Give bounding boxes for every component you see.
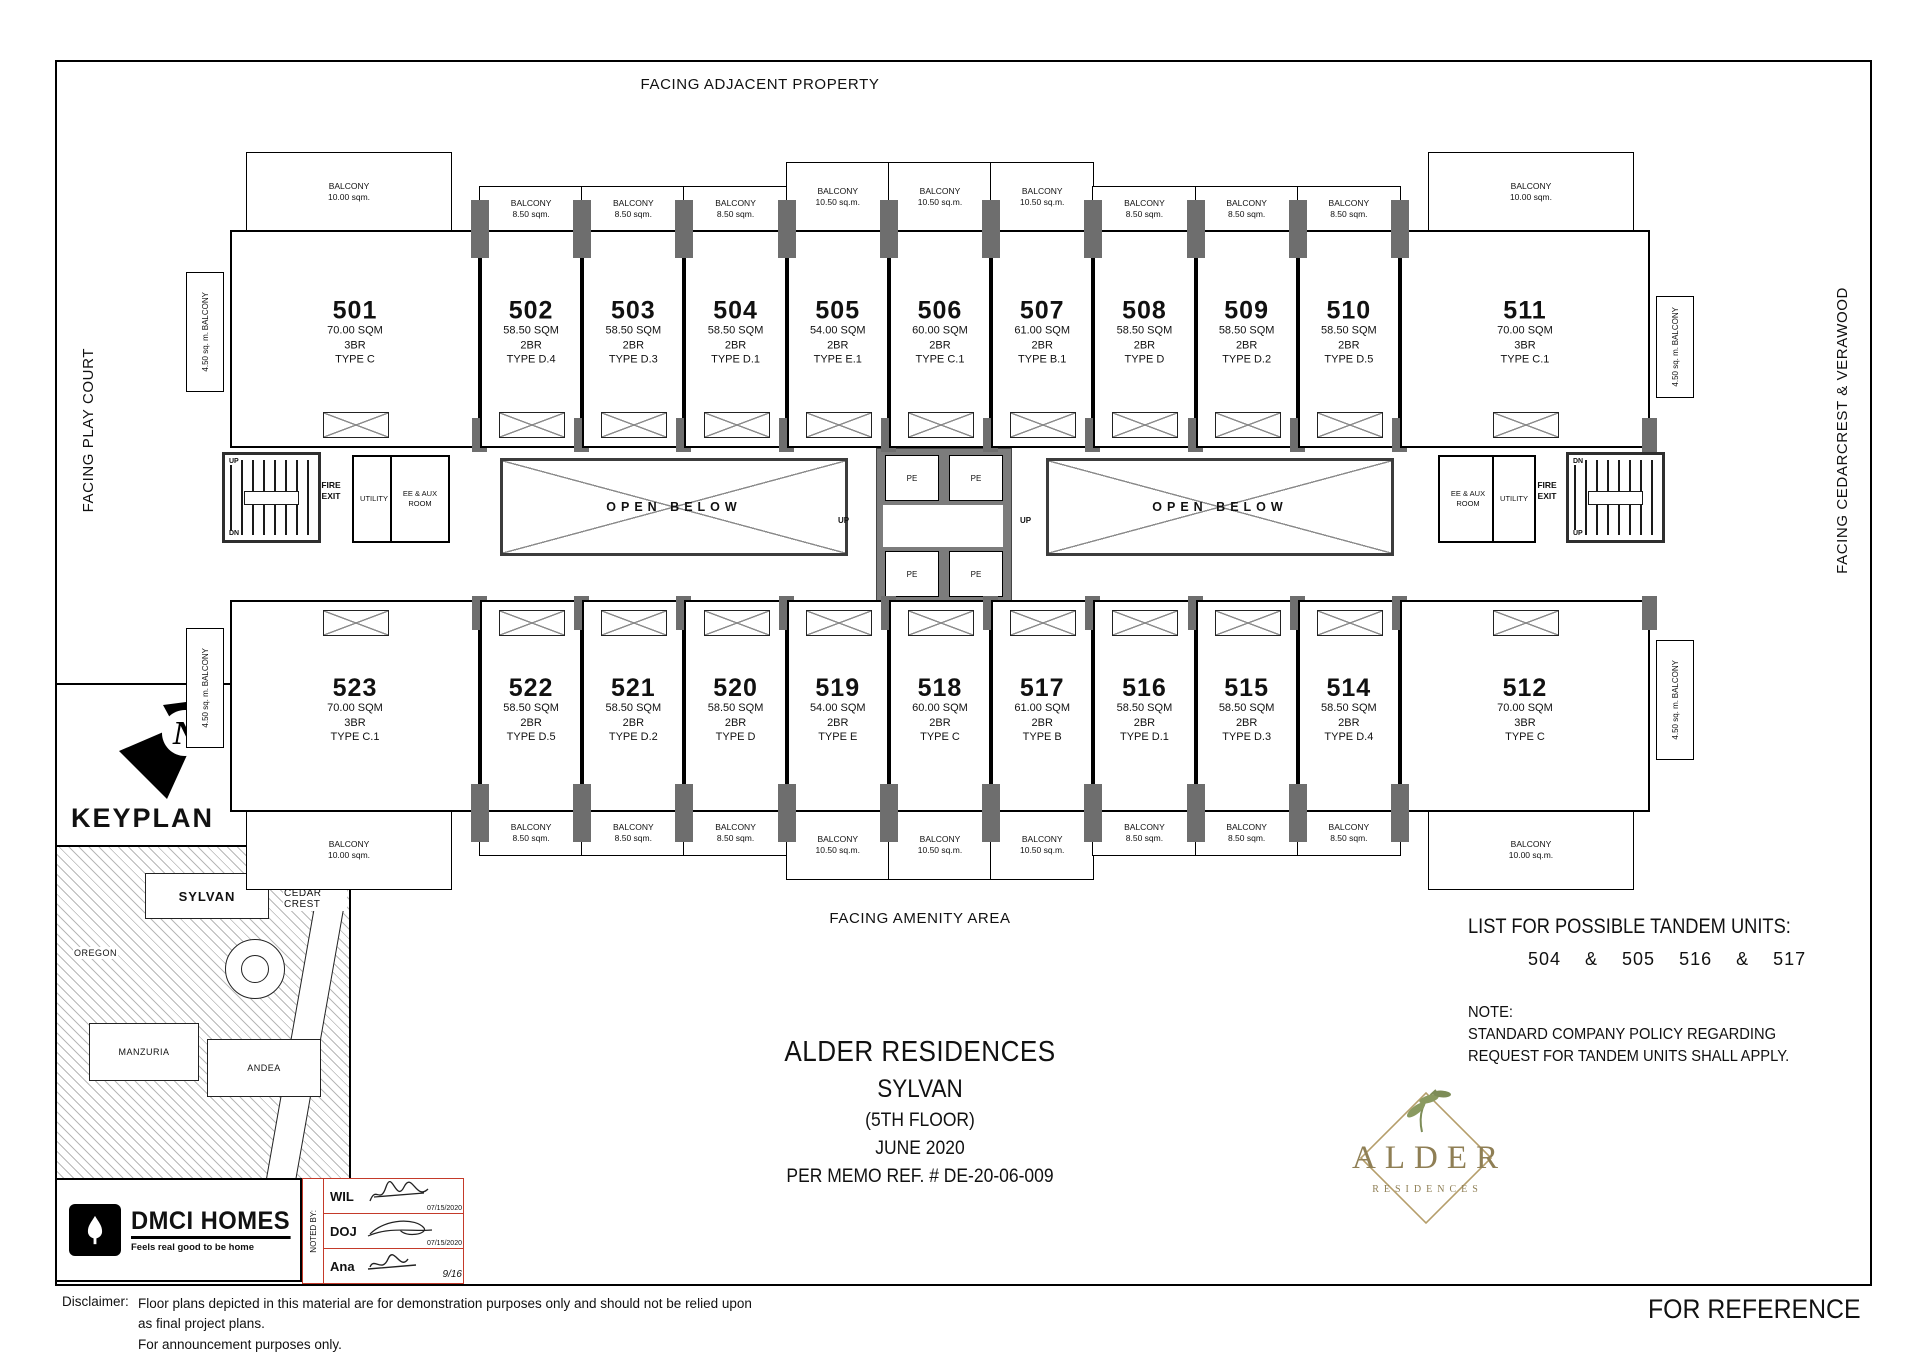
column-block xyxy=(982,200,1000,258)
unit-label: 50358.50 SQM2BRTYPE D.3 xyxy=(588,298,678,367)
stair-dn-label: DN xyxy=(228,530,240,537)
keyplan-roundabout xyxy=(225,939,285,999)
lower-unit-band: BALCONY10.00 sqm.52370.00 SQM3BRTYPE C.1… xyxy=(230,600,1650,890)
elevator-lobby xyxy=(883,505,1003,547)
fire-exit-label-left: FIRE EXIT xyxy=(312,480,350,502)
column-block xyxy=(573,784,591,842)
building-name: SYLVAN xyxy=(758,1075,1082,1104)
unit-balcony: BALCONY10.50 sq.m. xyxy=(990,810,1094,880)
unit-balcony: BALCONY10.00 sqm. xyxy=(246,152,452,232)
unit-number: 502 xyxy=(486,298,576,324)
unit-bedrooms: 2BR xyxy=(486,338,576,352)
unit-type: TYPE C xyxy=(895,730,985,744)
balcony-label: BALCONY xyxy=(511,823,552,832)
unit-bedrooms: 3BR xyxy=(1406,715,1644,729)
bathroom-fixture xyxy=(1010,412,1076,438)
unit-balcony: BALCONY10.50 sq.m. xyxy=(786,162,890,232)
unit-balcony: BALCONY10.50 sq.m. xyxy=(990,162,1094,232)
balcony-area: 10.50 sq.m. xyxy=(816,198,860,207)
unit-balcony: BALCONY8.50 sqm. xyxy=(683,810,787,856)
unit-type: TYPE D.3 xyxy=(1202,730,1292,744)
unit-number: 505 xyxy=(793,298,883,324)
unit-type: TYPE B.1 xyxy=(997,352,1087,366)
tandem-pairs: 504 & 505 516 & 517 xyxy=(1528,949,1888,970)
balcony-label: BALCONY xyxy=(920,187,961,196)
unit-interior: 52058.50 SQM2BRTYPE D xyxy=(684,600,786,812)
tandem-heading: LIST FOR POSSIBLE TANDEM UNITS: xyxy=(1468,915,1833,939)
balcony-label: BALCONY xyxy=(715,199,756,208)
unit-bedrooms: 2BR xyxy=(1202,715,1292,729)
tandem-note-label: NOTE: xyxy=(1468,1004,1854,1022)
balcony-area: 8.50 sqm. xyxy=(512,210,549,219)
open-below-label: OPEN BELOW xyxy=(1049,500,1391,514)
balcony-area: 10.50 sq.m. xyxy=(816,846,860,855)
unit-number: 514 xyxy=(1304,675,1394,701)
unit-interior: 50358.50 SQM2BRTYPE D.3 xyxy=(582,230,684,448)
column-block xyxy=(573,200,591,258)
unit-label: 50858.50 SQM2BRTYPE D xyxy=(1099,298,1189,367)
balcony-512-side: BALCONY 4.50 sq. m. xyxy=(1656,640,1694,760)
unit-area: 58.50 SQM xyxy=(1202,324,1292,338)
balcony-area: 10.50 sq.m. xyxy=(1020,198,1064,207)
balcony-label: BALCONY xyxy=(201,292,210,330)
balcony-label: BALCONY xyxy=(613,199,654,208)
unit-503: BALCONY8.50 sqm.50358.50 SQM2BRTYPE D.3 xyxy=(582,152,684,448)
bathroom-fixture xyxy=(323,412,389,438)
unit-interior: 52158.50 SQM2BRTYPE D.2 xyxy=(582,600,684,812)
unit-label: 51761.00 SQM2BRTYPE B xyxy=(997,675,1087,744)
facing-play-court-label: FACING PLAY COURT xyxy=(80,320,97,540)
signatory-name: WIL xyxy=(330,1189,354,1204)
unit-balcony: BALCONY8.50 sqm. xyxy=(1195,810,1299,856)
unit-bedrooms: 3BR xyxy=(236,338,474,352)
keyplan-cedar-crest-label: CEDAR CREST xyxy=(283,887,347,911)
ee-aux-room-left: EE & AUX ROOM xyxy=(390,455,450,543)
unit-interior: 50858.50 SQM2BRTYPE D xyxy=(1093,230,1195,448)
noted-by-header: NOTED BY: xyxy=(303,1179,324,1283)
balcony-label: BALCONY xyxy=(201,648,210,686)
unit-514: BALCONY8.50 sqm.51458.50 SQM2BRTYPE D.4 xyxy=(1298,600,1400,890)
unit-number: 510 xyxy=(1304,298,1394,324)
unit-type: TYPE D.2 xyxy=(588,730,678,744)
unit-type: TYPE C.1 xyxy=(1406,352,1644,366)
balcony-area: 8.50 sqm. xyxy=(1228,210,1265,219)
open-below-label: OPEN BELOW xyxy=(503,500,845,514)
balcony-501-side: BALCONY 4.50 sq. m. xyxy=(186,272,224,392)
unit-label: 51658.50 SQM2BRTYPE D.1 xyxy=(1099,675,1189,744)
unit-bedrooms: 2BR xyxy=(997,338,1087,352)
column-block xyxy=(1391,200,1409,258)
bathroom-fixture xyxy=(704,610,770,636)
unit-510: BALCONY8.50 sqm.51058.50 SQM2BRTYPE D.5 xyxy=(1298,152,1400,448)
unit-area: 58.50 SQM xyxy=(486,324,576,338)
unit-area: 58.50 SQM xyxy=(690,324,780,338)
balcony-label: BALCONY xyxy=(817,835,858,844)
disclaimer-text: Floor plans depicted in this material ar… xyxy=(138,1294,758,1355)
balcony-area: 10.50 sq.m. xyxy=(1020,846,1064,855)
unit-interior: 50660.00 SQM2BRTYPE C.1 xyxy=(889,230,991,448)
unit-bedrooms: 3BR xyxy=(1406,338,1644,352)
unit-number: 501 xyxy=(236,298,474,324)
unit-number: 523 xyxy=(236,675,474,701)
unit-area: 61.00 SQM xyxy=(997,324,1087,338)
column-block xyxy=(471,200,489,258)
fire-exit-stair-left: UP DN xyxy=(222,452,321,543)
unit-area: 70.00 SQM xyxy=(1406,324,1644,338)
balcony-area: 10.00 sqm. xyxy=(328,193,370,202)
unit-area: 58.50 SQM xyxy=(588,701,678,715)
balcony-area: 8.50 sqm. xyxy=(1330,834,1367,843)
unit-type: TYPE B xyxy=(997,730,1087,744)
noted-by-row: WIL 07/15/2020 xyxy=(324,1179,463,1214)
balcony-label: BALCONY xyxy=(1226,823,1267,832)
bathroom-fixture xyxy=(1493,412,1559,438)
unit-number: 512 xyxy=(1406,675,1644,701)
stair-landing xyxy=(244,491,300,505)
unit-506: BALCONY10.50 sq.m.50660.00 SQM2BRTYPE C.… xyxy=(889,152,991,448)
bathroom-fixture xyxy=(1010,610,1076,636)
balcony-label: BALCONY xyxy=(1022,187,1063,196)
unit-label: 51270.00 SQM3BRTYPE C xyxy=(1406,675,1644,744)
balcony-area: 8.50 sqm. xyxy=(1126,210,1163,219)
issue-date: JUNE 2020 xyxy=(754,1138,1085,1160)
unit-balcony: BALCONY10.00 sq.m. xyxy=(1428,810,1634,890)
unit-517: BALCONY10.50 sq.m.51761.00 SQM2BRTYPE B xyxy=(991,600,1093,890)
balcony-area: 10.00 sq.m. xyxy=(1509,851,1553,860)
bathroom-fixture xyxy=(499,610,565,636)
tandem-note-line: REQUEST FOR TANDEM UNITS SHALL APPLY. xyxy=(1468,1048,1854,1066)
unit-number: 509 xyxy=(1202,298,1292,324)
unit-502: BALCONY8.50 sqm.50258.50 SQM2BRTYPE D.4 xyxy=(480,152,582,448)
stair-up-label: UP xyxy=(228,458,240,465)
dmci-tagline: Feels real good to be home xyxy=(131,1242,299,1253)
keyplan-map: SYLVAN CEDAR CREST OREGON MANZURIA ANDEA xyxy=(55,845,351,1184)
unit-label: 50258.50 SQM2BRTYPE D.4 xyxy=(486,298,576,367)
stair-landing xyxy=(1588,491,1644,505)
balcony-label: BALCONY xyxy=(1511,182,1552,191)
signature-icon xyxy=(366,1216,436,1242)
column-block xyxy=(880,784,898,842)
keyplan-sylvan-label: SYLVAN xyxy=(179,889,236,904)
unit-number: 517 xyxy=(997,675,1087,701)
bathroom-fixture xyxy=(1112,412,1178,438)
balcony-area: 4.50 sq. m. xyxy=(1671,347,1680,387)
unit-label: 52058.50 SQM2BRTYPE D xyxy=(690,675,780,744)
stair-up-label: UP xyxy=(1572,530,1584,537)
balcony-label: BALCONY xyxy=(715,823,756,832)
unit-bedrooms: 2BR xyxy=(895,715,985,729)
unit-type: TYPE D xyxy=(690,730,780,744)
keyplan-oregon-label: OREGON xyxy=(73,947,118,959)
unit-label: 52370.00 SQM3BRTYPE C.1 xyxy=(236,675,474,744)
unit-type: TYPE D.1 xyxy=(1099,730,1189,744)
unit-label: 50761.00 SQM2BRTYPE B.1 xyxy=(997,298,1087,367)
balcony-label: BALCONY xyxy=(1124,823,1165,832)
signature-icon xyxy=(366,1251,422,1277)
unit-area: 58.50 SQM xyxy=(486,701,576,715)
unit-interior: 52370.00 SQM3BRTYPE C.1 xyxy=(230,600,480,812)
passenger-elevator: PE xyxy=(949,455,1003,501)
balcony-area: 8.50 sqm. xyxy=(512,834,549,843)
bathroom-fixture xyxy=(908,610,974,636)
unit-balcony: BALCONY10.00 sqm. xyxy=(1428,152,1634,232)
unit-label: 51058.50 SQM2BRTYPE D.5 xyxy=(1304,298,1394,367)
column-block xyxy=(880,200,898,258)
balcony-area: 8.50 sqm. xyxy=(717,834,754,843)
unit-523: BALCONY10.00 sqm.52370.00 SQM3BRTYPE C.1 xyxy=(230,600,480,890)
unit-512: BALCONY10.00 sq.m.51270.00 SQM3BRTYPE C xyxy=(1400,600,1650,890)
unit-518: BALCONY10.50 sq.m.51860.00 SQM2BRTYPE C xyxy=(889,600,991,890)
balcony-523-side: BALCONY 4.50 sq. m. xyxy=(186,628,224,748)
balcony-label: BALCONY xyxy=(511,199,552,208)
unit-area: 60.00 SQM xyxy=(895,324,985,338)
unit-balcony: BALCONY8.50 sqm. xyxy=(479,186,583,232)
column-block xyxy=(675,784,693,842)
balcony-area: 10.00 sqm. xyxy=(1510,193,1552,202)
column-block xyxy=(778,784,796,842)
unit-bedrooms: 2BR xyxy=(997,715,1087,729)
unit-bedrooms: 2BR xyxy=(1099,338,1189,352)
dmci-homes-wordmark: DMCI HOMES xyxy=(131,1207,290,1239)
unit-504: BALCONY8.50 sqm.50458.50 SQM2BRTYPE D.1 xyxy=(684,152,786,448)
corridor-up-label-right: UP xyxy=(1020,516,1031,525)
unit-interior: 50958.50 SQM2BRTYPE D.2 xyxy=(1196,230,1298,448)
column-block xyxy=(1289,784,1307,842)
unit-bedrooms: 2BR xyxy=(1304,338,1394,352)
column-block xyxy=(675,200,693,258)
signature-date: 9/16 xyxy=(443,1269,462,1280)
balcony-label: BALCONY xyxy=(1226,199,1267,208)
signatory-name: DOJ xyxy=(330,1224,357,1239)
unit-number: 508 xyxy=(1099,298,1189,324)
unit-area: 58.50 SQM xyxy=(690,701,780,715)
unit-bedrooms: 2BR xyxy=(486,715,576,729)
unit-balcony: BALCONY8.50 sqm. xyxy=(581,186,685,232)
unit-balcony: BALCONY8.50 sqm. xyxy=(581,810,685,856)
facing-adjacent-property-label: FACING ADJACENT PROPERTY xyxy=(560,76,960,93)
unit-505: BALCONY10.50 sq.m.50554.00 SQM2BRTYPE E.… xyxy=(787,152,889,448)
unit-area: 54.00 SQM xyxy=(793,324,883,338)
noted-by-table: NOTED BY: WIL 07/15/2020 DOJ 07/15/2020 … xyxy=(302,1178,464,1284)
balcony-511-side: BALCONY 4.50 sq. m. xyxy=(1656,296,1694,398)
balcony-area: 10.00 sqm. xyxy=(328,851,370,860)
balcony-area: 8.50 sqm. xyxy=(717,210,754,219)
unit-type: TYPE E.1 xyxy=(793,352,883,366)
balcony-area: 8.50 sqm. xyxy=(615,834,652,843)
unit-balcony: BALCONY10.00 sqm. xyxy=(246,810,452,890)
unit-balcony: BALCONY8.50 sqm. xyxy=(1092,810,1196,856)
fire-exit-label-right: FIRE EXIT xyxy=(1528,480,1566,502)
unit-bedrooms: 2BR xyxy=(1304,715,1394,729)
unit-number: 516 xyxy=(1099,675,1189,701)
unit-balcony: BALCONY8.50 sqm. xyxy=(1195,186,1299,232)
unit-501: BALCONY10.00 sqm.50170.00 SQM3BRTYPE C xyxy=(230,152,480,448)
unit-type: TYPE D.2 xyxy=(1202,352,1292,366)
unit-area: 60.00 SQM xyxy=(895,701,985,715)
project-title: ALDER RESIDENCES xyxy=(758,1036,1082,1069)
unit-area: 58.50 SQM xyxy=(1304,701,1394,715)
balcony-label: BALCONY xyxy=(1022,835,1063,844)
unit-balcony: BALCONY10.50 sq.m. xyxy=(786,810,890,880)
unit-bedrooms: 2BR xyxy=(895,338,985,352)
unit-interior: 51761.00 SQM2BRTYPE B xyxy=(991,600,1093,812)
column-block xyxy=(778,200,796,258)
unit-area: 70.00 SQM xyxy=(236,324,474,338)
unit-515: BALCONY8.50 sqm.51558.50 SQM2BRTYPE D.3 xyxy=(1196,600,1298,890)
unit-label: 52258.50 SQM2BRTYPE D.5 xyxy=(486,675,576,744)
unit-number: 503 xyxy=(588,298,678,324)
passenger-elevator: PE xyxy=(885,551,939,597)
corridor-up-label-left: UP xyxy=(838,516,849,525)
unit-bedrooms: 2BR xyxy=(588,715,678,729)
unit-balcony: BALCONY8.50 sqm. xyxy=(1092,186,1196,232)
unit-interior: 51658.50 SQM2BRTYPE D.1 xyxy=(1093,600,1195,812)
elevator-core: PE PE PE PE xyxy=(876,448,1012,604)
balcony-label: BALCONY xyxy=(920,835,961,844)
alder-residences-logo: ALDER RESIDENCES xyxy=(1330,1082,1520,1250)
column-block xyxy=(1084,784,1102,842)
bathroom-fixture xyxy=(499,412,565,438)
unit-type: TYPE D.1 xyxy=(690,352,780,366)
unit-509: BALCONY8.50 sqm.50958.50 SQM2BRTYPE D.2 xyxy=(1196,152,1298,448)
unit-507: BALCONY10.50 sq.m.50761.00 SQM2BRTYPE B.… xyxy=(991,152,1093,448)
unit-label: 50170.00 SQM3BRTYPE C xyxy=(236,298,474,367)
unit-type: TYPE C xyxy=(1406,730,1644,744)
title-block: ALDER RESIDENCES SYLVAN (5TH FLOOR) JUNE… xyxy=(740,1036,1100,1188)
unit-balcony: BALCONY8.50 sqm. xyxy=(683,186,787,232)
balcony-label: BALCONY xyxy=(1671,660,1680,698)
balcony-area: 4.50 sq. m. xyxy=(201,688,210,728)
keyplan-title: KEYPLAN xyxy=(71,803,214,834)
unit-bedrooms: 2BR xyxy=(690,715,780,729)
balcony-label: BALCONY xyxy=(1124,199,1165,208)
unit-label: 50554.00 SQM2BRTYPE E.1 xyxy=(793,298,883,367)
unit-balcony: BALCONY8.50 sqm. xyxy=(1297,810,1401,856)
column-block xyxy=(471,784,489,842)
balcony-area: 8.50 sqm. xyxy=(1330,210,1367,219)
balcony-area: 8.50 sqm. xyxy=(615,210,652,219)
balcony-label: BALCONY xyxy=(1329,823,1370,832)
unit-type: TYPE C xyxy=(236,352,474,366)
open-below-right: OPEN BELOW xyxy=(1046,458,1394,556)
balcony-label: BALCONY xyxy=(1671,307,1680,345)
unit-508: BALCONY8.50 sqm.50858.50 SQM2BRTYPE D xyxy=(1093,152,1195,448)
unit-number: 521 xyxy=(588,675,678,701)
unit-number: 507 xyxy=(997,298,1087,324)
unit-label: 51458.50 SQM2BRTYPE D.4 xyxy=(1304,675,1394,744)
column-block xyxy=(1391,784,1409,842)
unit-bedrooms: 2BR xyxy=(793,338,883,352)
bathroom-fixture xyxy=(601,412,667,438)
alder-wordmark: ALDER xyxy=(1330,1140,1520,1177)
unit-number: 518 xyxy=(895,675,985,701)
column-block xyxy=(1187,200,1205,258)
unit-interior: 50761.00 SQM2BRTYPE B.1 xyxy=(991,230,1093,448)
unit-area: 61.00 SQM xyxy=(997,701,1087,715)
bathroom-fixture xyxy=(806,412,872,438)
facing-cedarcrest-verawood-label: FACING CEDARCREST & VERAWOOD xyxy=(1834,280,1851,580)
unit-label: 50458.50 SQM2BRTYPE D.1 xyxy=(690,298,780,367)
unit-area: 70.00 SQM xyxy=(236,701,474,715)
balcony-label: BALCONY xyxy=(1511,840,1552,849)
unit-number: 504 xyxy=(690,298,780,324)
ee-aux-room-right: EE & AUX ROOM xyxy=(1438,455,1498,543)
unit-label: 50660.00 SQM2BRTYPE C.1 xyxy=(895,298,985,367)
bathroom-fixture xyxy=(1317,610,1383,636)
unit-bedrooms: 2BR xyxy=(1202,338,1292,352)
unit-interior: 51170.00 SQM3BRTYPE C.1 xyxy=(1400,230,1650,448)
unit-type: TYPE D xyxy=(1099,352,1189,366)
bathroom-fixture xyxy=(704,412,770,438)
unit-area: 58.50 SQM xyxy=(1202,701,1292,715)
unit-interior: 51558.50 SQM2BRTYPE D.3 xyxy=(1196,600,1298,812)
unit-area: 70.00 SQM xyxy=(1406,701,1644,715)
balcony-area: 8.50 sqm. xyxy=(1228,834,1265,843)
unit-label: 51954.00 SQM2BRTYPE E xyxy=(793,675,883,744)
keyplan-manzuria-building: MANZURIA xyxy=(89,1023,199,1081)
unit-520: BALCONY8.50 sqm.52058.50 SQM2BRTYPE D xyxy=(684,600,786,890)
keyplan-andea-building: ANDEA xyxy=(207,1039,321,1097)
unit-area: 58.50 SQM xyxy=(588,324,678,338)
passenger-elevator: PE xyxy=(885,455,939,501)
bathroom-fixture xyxy=(1112,610,1178,636)
dmci-brand-block: DMCI HOMES Feels real good to be home xyxy=(55,1178,302,1282)
bathroom-fixture xyxy=(601,610,667,636)
tandem-note-line: STANDARD COMPANY POLICY REGARDING xyxy=(1468,1026,1854,1044)
alder-residences-wordmark: RESIDENCES xyxy=(1330,1184,1520,1195)
bathroom-fixture xyxy=(1215,412,1281,438)
balcony-area: 4.50 sq. m. xyxy=(1671,700,1680,740)
memo-reference: PER MEMO REF. # DE-20-06-009 xyxy=(754,1166,1085,1188)
floor-plan-sheet: FACING ADJACENT PROPERTY FACING PLAY COU… xyxy=(0,0,1920,1358)
noted-by-row: Ana 9/16 xyxy=(324,1249,463,1283)
unit-interior: 51458.50 SQM2BRTYPE D.4 xyxy=(1298,600,1400,812)
unit-type: TYPE D.4 xyxy=(1304,730,1394,744)
column-block xyxy=(1187,784,1205,842)
balcony-area: 4.50 sq. m. xyxy=(201,332,210,372)
unit-label: 51860.00 SQM2BRTYPE C xyxy=(895,675,985,744)
unit-interior: 51058.50 SQM2BRTYPE D.5 xyxy=(1298,230,1400,448)
unit-balcony: BALCONY8.50 sqm. xyxy=(1297,186,1401,232)
signature-icon xyxy=(366,1181,436,1207)
balcony-label: BALCONY xyxy=(613,823,654,832)
tandem-units-block: LIST FOR POSSIBLE TANDEM UNITS: 504 & 50… xyxy=(1468,915,1888,1066)
unit-516: BALCONY8.50 sqm.51658.50 SQM2BRTYPE D.1 xyxy=(1093,600,1195,890)
unit-label: 51170.00 SQM3BRTYPE C.1 xyxy=(1406,298,1644,367)
unit-number: 506 xyxy=(895,298,985,324)
unit-type: TYPE D.5 xyxy=(486,730,576,744)
unit-519: BALCONY10.50 sq.m.51954.00 SQM2BRTYPE E xyxy=(787,600,889,890)
fire-exit-stair-right: DN UP xyxy=(1566,452,1665,543)
unit-521: BALCONY8.50 sqm.52158.50 SQM2BRTYPE D.2 xyxy=(582,600,684,890)
unit-balcony: BALCONY8.50 sqm. xyxy=(479,810,583,856)
unit-bedrooms: 2BR xyxy=(690,338,780,352)
unit-area: 58.50 SQM xyxy=(1099,701,1189,715)
unit-area: 58.50 SQM xyxy=(1099,324,1189,338)
unit-balcony: BALCONY10.50 sq.m. xyxy=(888,162,992,232)
unit-area: 54.00 SQM xyxy=(793,701,883,715)
unit-number: 511 xyxy=(1406,298,1644,324)
bathroom-fixture xyxy=(806,610,872,636)
unit-label: 51558.50 SQM2BRTYPE D.3 xyxy=(1202,675,1292,744)
unit-interior: 50258.50 SQM2BRTYPE D.4 xyxy=(480,230,582,448)
signatory-name: Ana xyxy=(330,1259,355,1274)
unit-type: TYPE D.3 xyxy=(588,352,678,366)
noted-by-rows: WIL 07/15/2020 DOJ 07/15/2020 Ana 9/16 xyxy=(324,1179,463,1283)
unit-interior: 52258.50 SQM2BRTYPE D.5 xyxy=(480,600,582,812)
bathroom-fixture xyxy=(908,412,974,438)
column-block xyxy=(982,784,1000,842)
